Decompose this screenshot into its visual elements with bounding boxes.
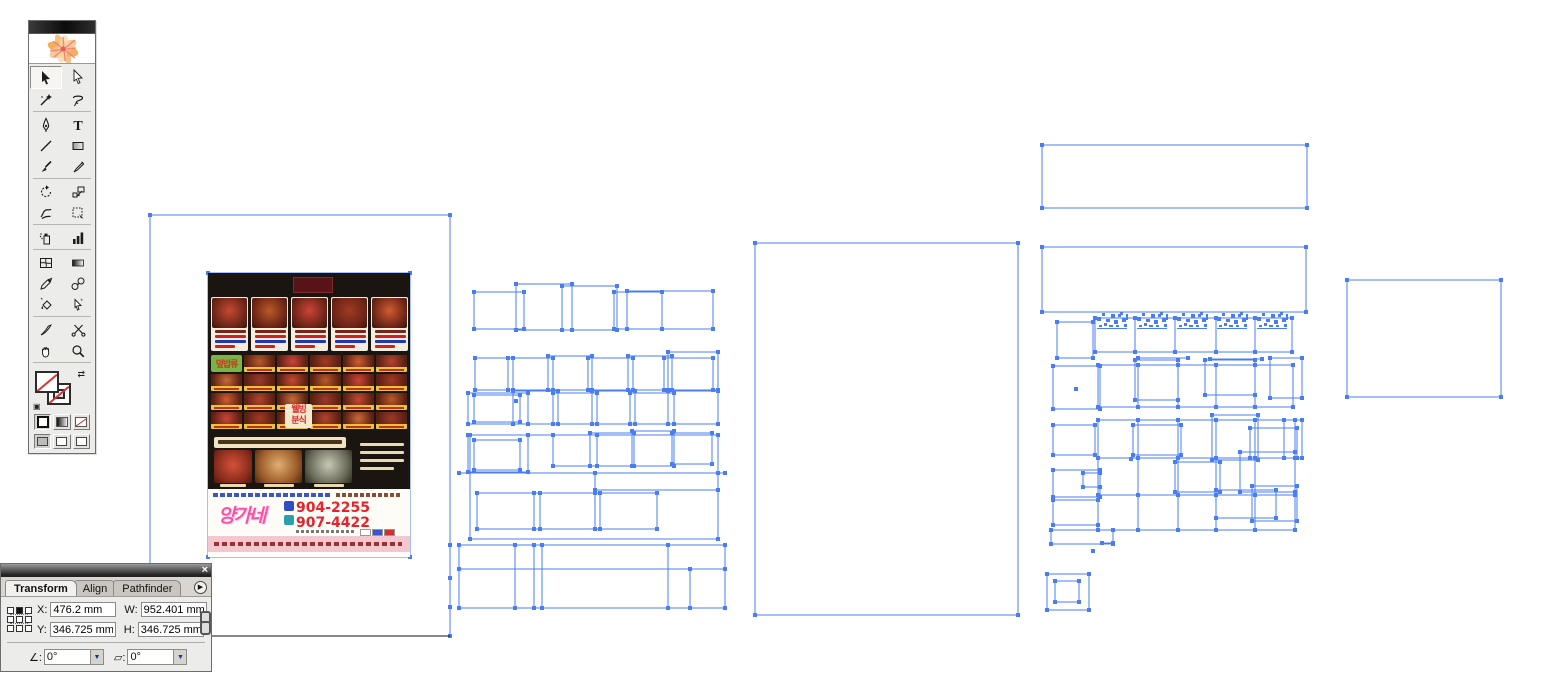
svg-text:T: T (73, 119, 83, 133)
rectangle-tool[interactable] (62, 135, 94, 156)
menu-grid-tile (244, 355, 275, 372)
standard-screen-mode-button[interactable] (34, 434, 51, 449)
rotate-angle-icon: ∠: (29, 651, 42, 664)
h-field[interactable] (138, 622, 204, 637)
card-logo (372, 529, 383, 536)
tab-transform[interactable]: Transform (5, 580, 77, 596)
scale-tool[interactable] (62, 181, 94, 202)
live-paint-bucket-tool[interactable]: * (30, 294, 62, 315)
menu-grid-tile (244, 374, 275, 391)
menu-board-photo: 덮밥류 웰빙 분식 (208, 273, 410, 489)
reference-point-dot[interactable] (16, 616, 23, 623)
free-transform-tool[interactable] (62, 202, 94, 223)
menu-grid-tile (310, 412, 341, 429)
phone-number-2: 907-4422 (296, 515, 370, 531)
price-text-line (360, 459, 404, 462)
menu-category-label: 덮밥류 (211, 355, 242, 372)
menu-grid-tile (211, 412, 242, 429)
dropdown-arrow-icon[interactable]: ▼ (173, 650, 186, 664)
tab-align[interactable]: Align (74, 580, 116, 596)
menu-card (291, 297, 328, 351)
rotate-tool[interactable] (30, 181, 62, 202)
menu-grid-tile (310, 374, 341, 391)
korean-text-line (296, 530, 354, 533)
menu-grid-tile (376, 355, 407, 372)
dish-photo (255, 450, 302, 483)
reference-point-dot[interactable] (16, 625, 23, 632)
dish-photo (214, 450, 252, 483)
menu-grid-tile (211, 393, 242, 410)
blend-tool[interactable] (62, 273, 94, 294)
tools-palette-titlebar[interactable] (29, 21, 95, 34)
menu-grid-tile (310, 393, 341, 410)
column-graph-tool[interactable] (62, 227, 94, 248)
wellbeing-label: 웰빙 분식 (285, 404, 312, 428)
reference-point-selector[interactable] (7, 607, 31, 631)
menu-subheader (214, 437, 346, 448)
placed-image-menu-flyer[interactable]: 덮밥류 웰빙 분식 양가네 904-2255 907-4422 (208, 273, 410, 557)
reference-point-dot[interactable] (16, 607, 23, 614)
menu-card (211, 297, 248, 351)
menu-sign (293, 277, 333, 293)
transform-palette-titlebar[interactable]: × (1, 564, 211, 577)
menu-card (371, 297, 408, 351)
type-tool[interactable]: T (62, 114, 94, 135)
card-logo (360, 529, 371, 536)
transform-palette: × Transform Align Pathfinder ▶ X: W: Y: (0, 563, 212, 672)
reference-point-dot[interactable] (25, 625, 32, 632)
scissors-tool[interactable] (62, 319, 94, 340)
menu-grid-tile (376, 374, 407, 391)
zoom-tool[interactable] (62, 340, 94, 361)
menu-grid-tile (277, 355, 308, 372)
menu-grid-tile (376, 412, 407, 429)
fullscreen-menu-mode-button[interactable] (53, 434, 70, 449)
store-name: 양가네 (218, 501, 284, 528)
color-button[interactable] (34, 414, 51, 430)
w-field[interactable] (141, 602, 207, 617)
rotate-angle-select[interactable]: 0° ▼ (44, 649, 104, 665)
card-logo (384, 529, 395, 536)
tab-pathfinder[interactable]: Pathfinder (113, 580, 181, 596)
paintbrush-tool[interactable] (30, 156, 62, 177)
menu-grid-tile (343, 355, 374, 372)
reference-point-dot[interactable] (25, 616, 32, 623)
dish-name-line (314, 484, 344, 487)
w-label: W: (124, 604, 137, 616)
illustrator-workspace: 덮밥류 웰빙 분식 양가네 904-2255 907-4422 (0, 0, 1552, 698)
x-field[interactable] (50, 602, 116, 617)
reference-point-dot[interactable] (7, 625, 14, 632)
eyedropper-tool[interactable] (30, 273, 62, 294)
menu-grid-tile (343, 393, 374, 410)
menu-grid-tile (277, 374, 308, 391)
menu-grid-tile (310, 355, 341, 372)
flyer-contact-section: 양가네 904-2255 907-4422 (208, 489, 410, 536)
phone-number-1: 904-2255 (296, 500, 370, 516)
reference-point-dot[interactable] (25, 607, 32, 614)
menu-grid-tile (244, 393, 275, 410)
korean-text-line (213, 493, 331, 497)
svg-text:*: * (81, 299, 84, 305)
close-icon[interactable]: × (202, 564, 208, 577)
tools-palette: T** ⇄ ▣ (28, 20, 96, 454)
reference-point-dot[interactable] (7, 616, 14, 623)
phone-badge (284, 501, 294, 511)
palette-menu-icon[interactable]: ▶ (194, 581, 207, 594)
shear-angle-icon: ▱: (114, 651, 126, 664)
gradient-button[interactable] (53, 414, 70, 430)
swap-fill-stroke-icon[interactable]: ⇄ (77, 369, 85, 380)
menu-grid-tile (376, 393, 407, 410)
pencil-tool[interactable] (62, 156, 94, 177)
live-paint-selection-tool[interactable]: * (62, 294, 94, 315)
warp-tool[interactable] (30, 202, 62, 223)
korean-text-line (336, 493, 402, 497)
direct-selection-tool[interactable] (62, 66, 94, 87)
x-label: X: (37, 604, 47, 616)
reference-point-dot[interactable] (7, 607, 14, 614)
price-text-line (360, 443, 404, 446)
hand-tool[interactable] (30, 340, 62, 361)
line-segment-tool[interactable] (30, 135, 62, 156)
menu-card (331, 297, 368, 351)
menu-grid-tile (343, 374, 374, 391)
y-label: Y: (37, 624, 47, 636)
dish-name-line (220, 484, 246, 487)
knife-tool[interactable] (30, 319, 62, 340)
none-button[interactable] (73, 414, 90, 430)
fill-swatch-none[interactable] (35, 371, 59, 393)
fullscreen-mode-button[interactable] (73, 434, 90, 449)
pen-tool[interactable] (30, 114, 62, 135)
dropdown-arrow-icon[interactable]: ▼ (90, 650, 103, 664)
magic-wand-tool[interactable] (30, 89, 62, 110)
dish-photo (305, 450, 352, 483)
price-text-line (360, 467, 394, 470)
delivery-badge (284, 515, 294, 525)
h-label: H: (124, 624, 135, 636)
illustrator-logo (29, 34, 95, 64)
lasso-tool[interactable] (62, 89, 94, 110)
y-field[interactable] (50, 622, 116, 637)
fill-stroke-control[interactable]: ⇄ ▣ (33, 369, 91, 411)
default-fill-stroke-icon[interactable]: ▣ (33, 402, 41, 411)
menu-card (251, 297, 288, 351)
menu-grid-tile (343, 412, 374, 429)
menu-grid-tile (211, 374, 242, 391)
symbol-sprayer-tool[interactable] (30, 227, 62, 248)
mesh-tool[interactable] (30, 252, 62, 273)
menu-grid-tile (244, 412, 275, 429)
flyer-footer-strip (208, 536, 410, 552)
tool-group-divider (30, 361, 94, 365)
gradient-tool[interactable] (62, 252, 94, 273)
constrain-proportions-icon[interactable] (200, 611, 209, 637)
shear-angle-select[interactable]: 0° ▼ (127, 649, 187, 665)
selection-tool[interactable] (30, 66, 62, 89)
svg-text:*: * (41, 298, 44, 304)
price-text-line (360, 451, 404, 454)
dish-name-line (264, 484, 294, 487)
